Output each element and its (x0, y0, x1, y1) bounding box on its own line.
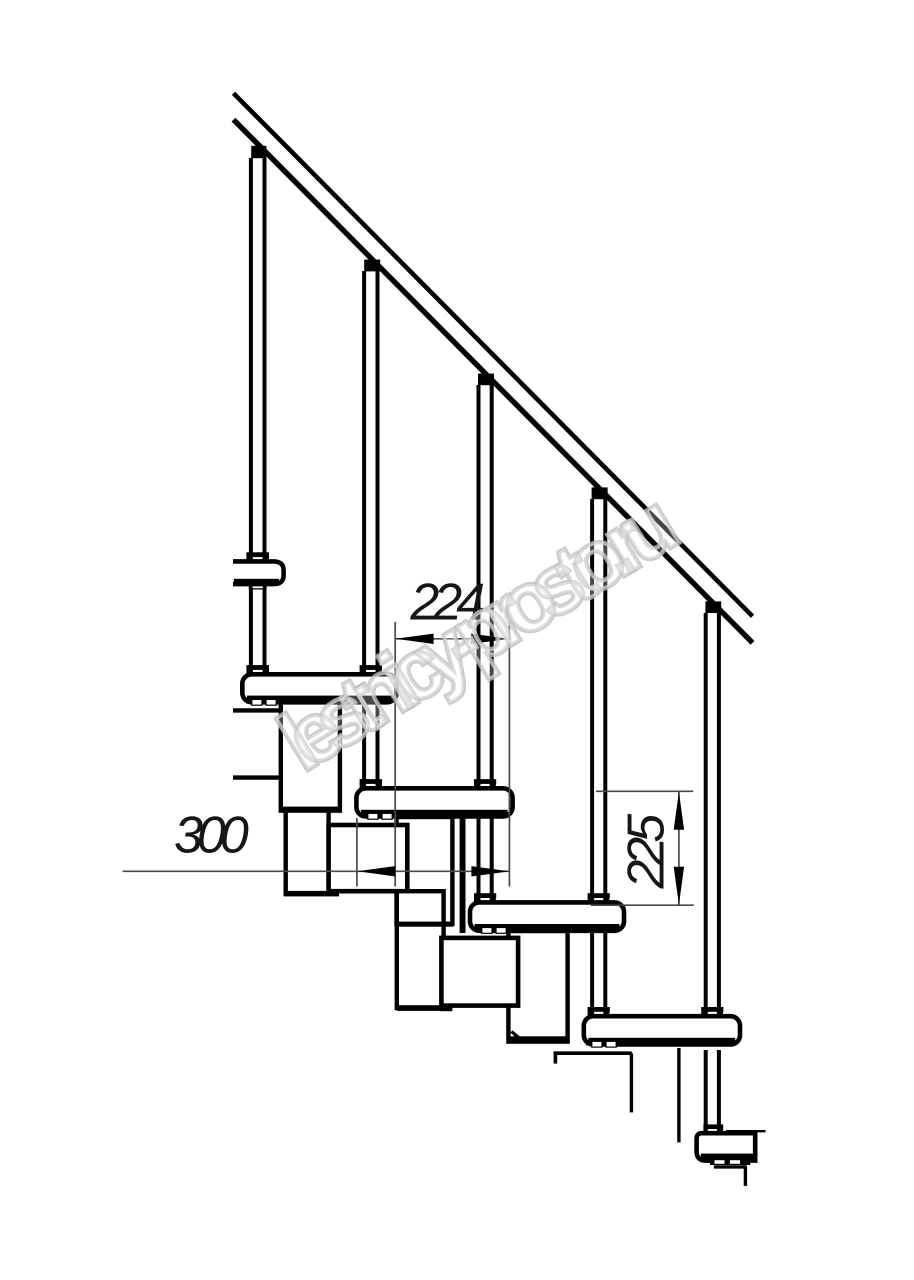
svg-text:300: 300 (174, 807, 249, 865)
svg-text:225: 225 (618, 813, 676, 890)
